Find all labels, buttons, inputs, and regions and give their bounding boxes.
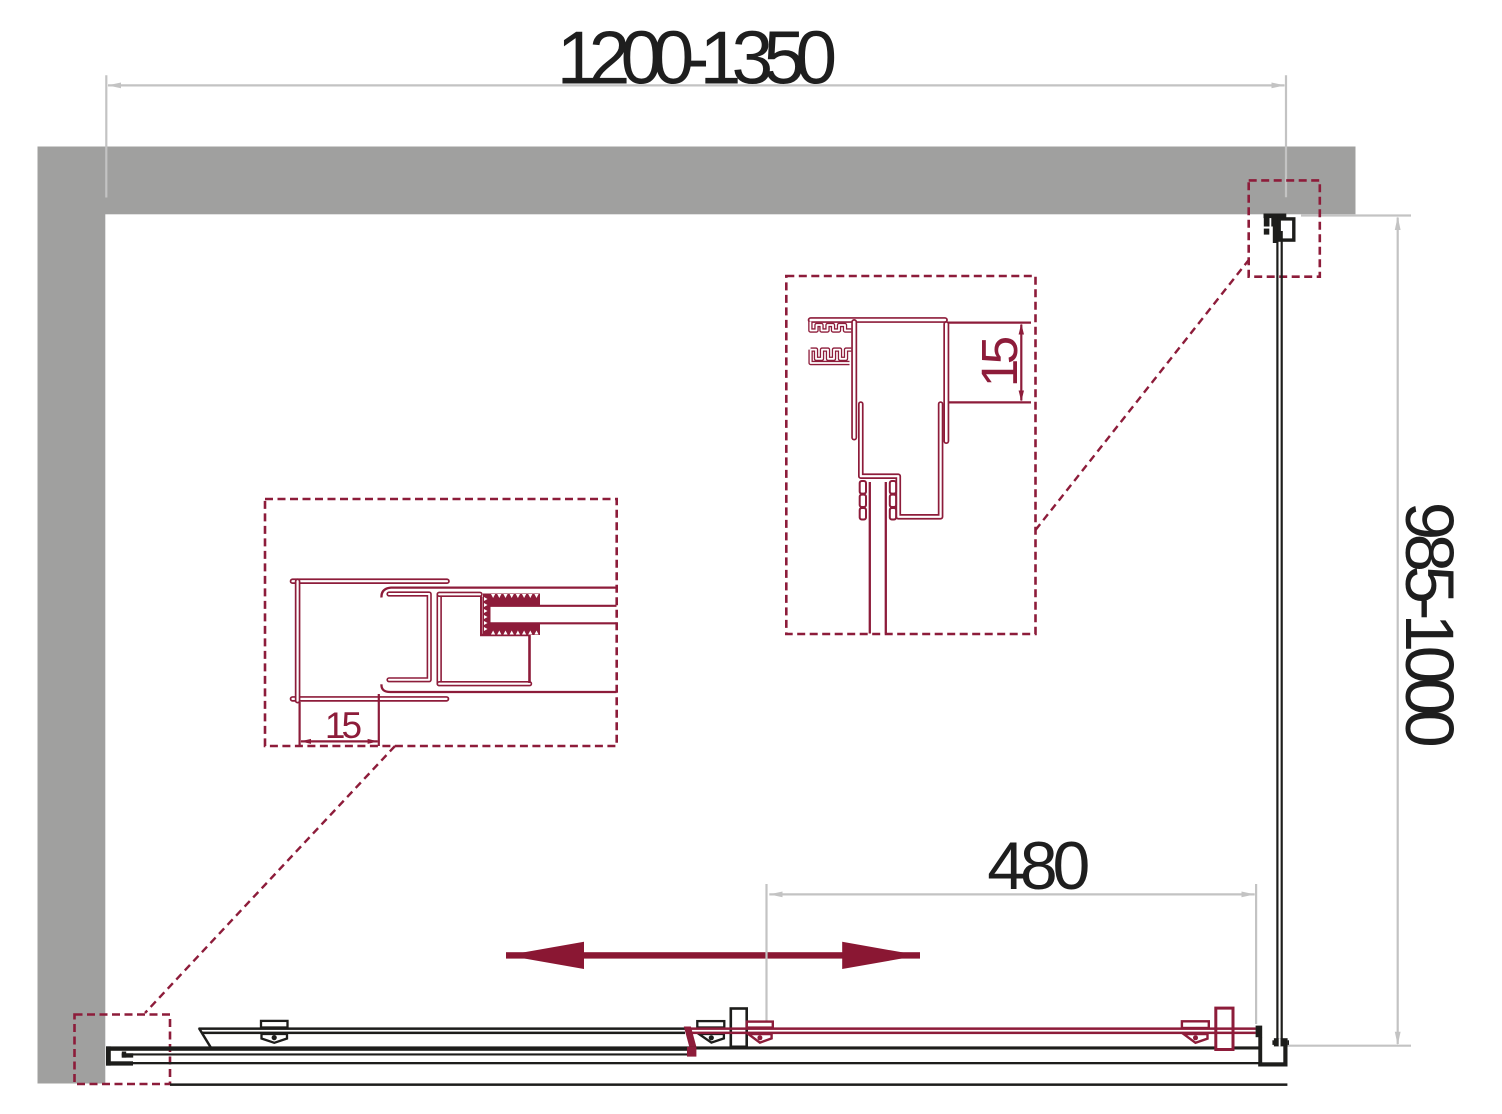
svg-text:480: 480 bbox=[987, 828, 1088, 904]
svg-text:15: 15 bbox=[325, 705, 362, 746]
svg-text:15: 15 bbox=[971, 337, 1028, 387]
svg-text:985-1000: 985-1000 bbox=[1391, 502, 1468, 746]
svg-text:1200-1350: 1200-1350 bbox=[557, 15, 835, 99]
